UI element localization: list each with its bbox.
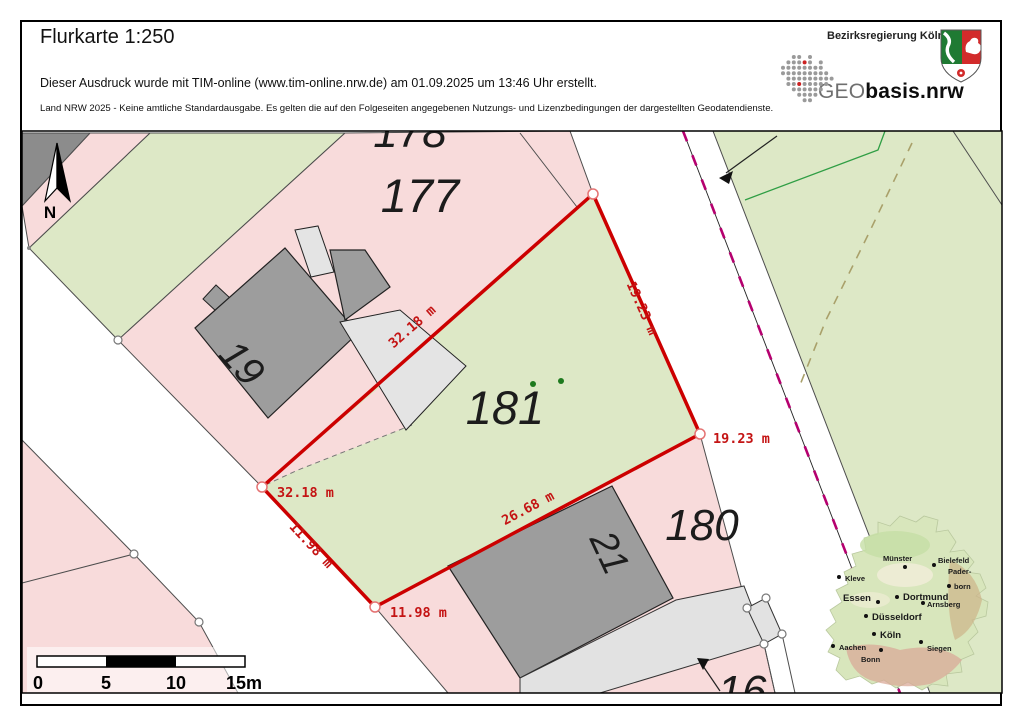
city-label: Kleve — [845, 574, 865, 583]
city-label: Aachen — [839, 643, 867, 652]
city-dot — [919, 640, 923, 644]
city-label: Münster — [883, 554, 912, 563]
city-dot — [903, 565, 907, 569]
city-dot — [864, 614, 868, 618]
scale-tick-15: 15m — [226, 673, 262, 693]
city-dot — [876, 600, 880, 604]
city-dot — [879, 648, 883, 652]
city-dot — [837, 575, 841, 579]
measure-vertex-south: 11.98 m — [390, 605, 447, 621]
measure-vertex-west: 32.18 m — [277, 485, 334, 501]
north-label: N — [44, 203, 56, 222]
city-label: Essen — [843, 593, 871, 604]
city-label: Köln — [880, 630, 901, 641]
measure-vertex-east: 19.23 m — [713, 431, 770, 447]
parcel-label-178: 178 — [373, 108, 447, 157]
city-label: Düsseldorf — [872, 612, 922, 623]
parcel-label-181: 181 — [466, 381, 544, 434]
city-label: Bonn — [861, 655, 881, 664]
city-dot — [872, 632, 876, 636]
city-label: Siegen — [927, 644, 952, 653]
scale-tick-0: 0 — [33, 673, 43, 693]
city-dot — [947, 584, 951, 588]
city-dot — [831, 644, 835, 648]
city-label: Arnsberg — [927, 600, 961, 609]
scale-tick-5: 5 — [101, 673, 111, 693]
parcel-label-180: 180 — [665, 501, 739, 550]
parcel-label-177: 177 — [381, 169, 461, 222]
city-label: born — [954, 582, 971, 591]
parcel-label-16: 16 — [718, 667, 767, 716]
scale-bar: 0 5 10 15m — [27, 647, 277, 697]
city-label: Bielefeld — [938, 556, 970, 565]
city-dot — [921, 601, 925, 605]
city-label: Pader- — [948, 567, 972, 576]
scale-tick-10: 10 — [166, 673, 186, 693]
city-dot — [932, 563, 936, 567]
city-dot — [895, 595, 899, 599]
cadastral-map: 178 177 181 180 16 19 21 32.18 m 19.23 m… — [0, 0, 1024, 723]
